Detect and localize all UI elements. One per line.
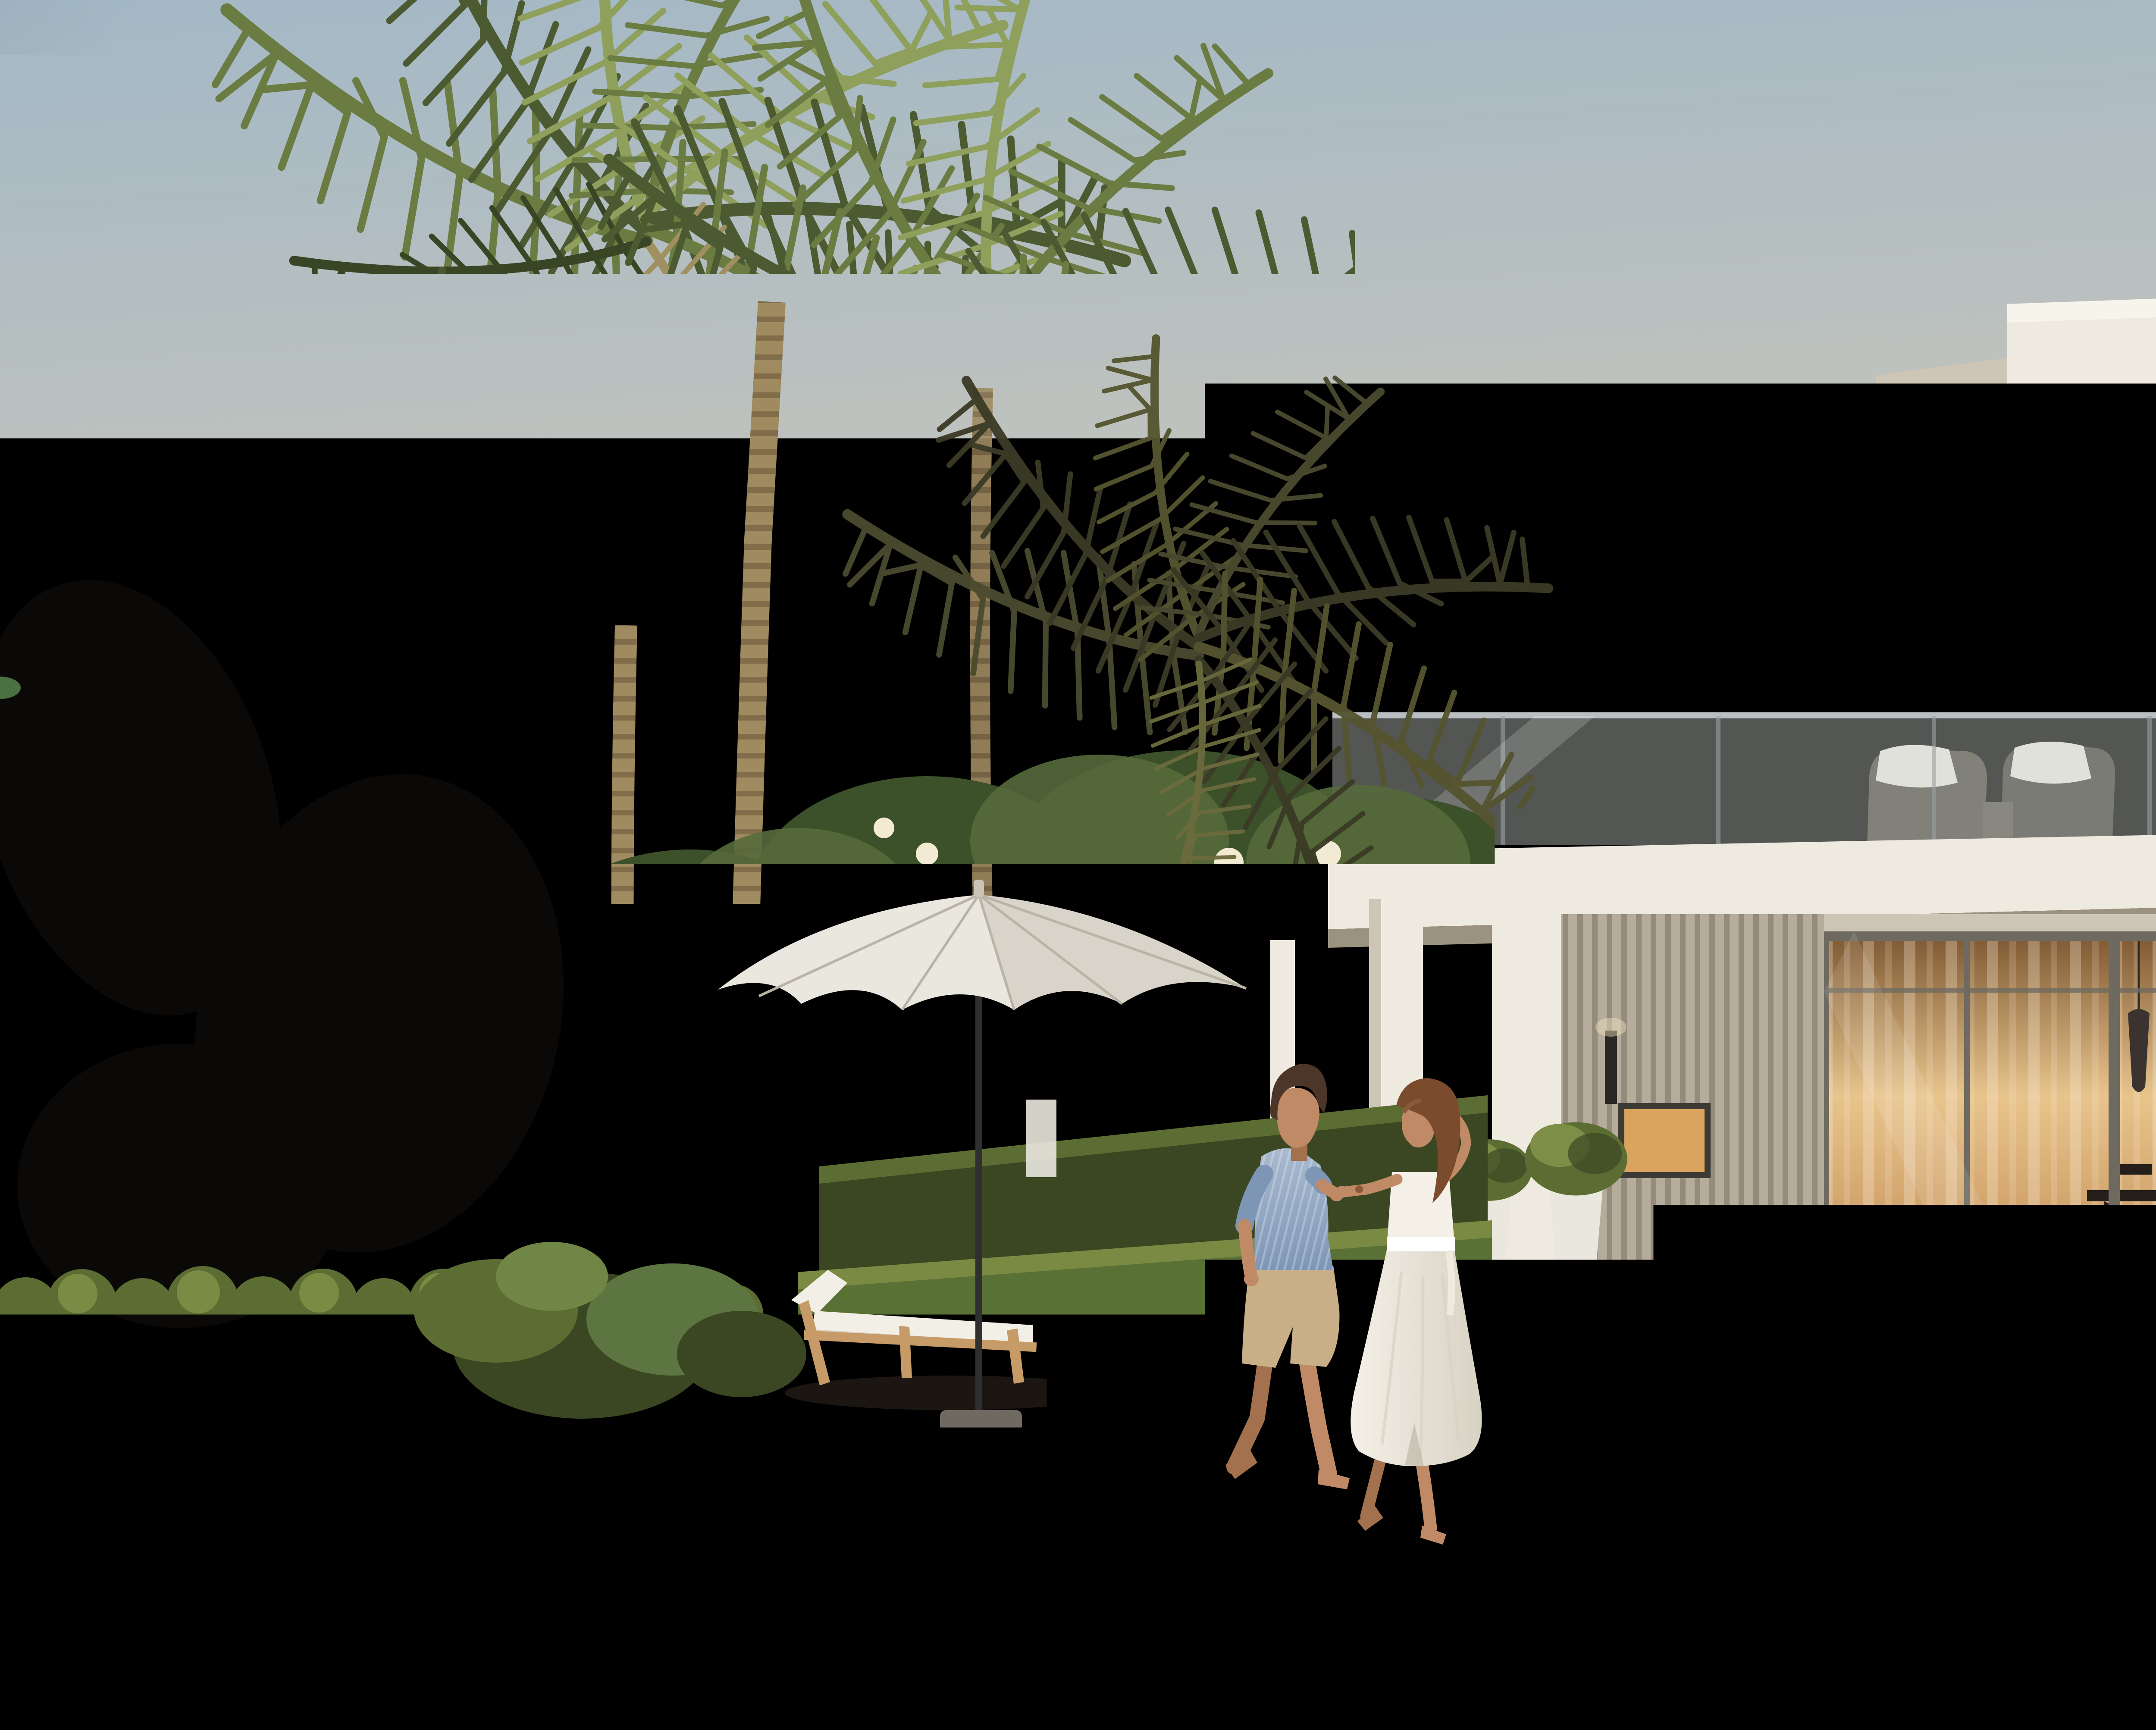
- vignette: [0, 0, 2156, 1730]
- beachfront-villa-render: [0, 0, 2156, 1730]
- scene-canvas: [0, 0, 2156, 1730]
